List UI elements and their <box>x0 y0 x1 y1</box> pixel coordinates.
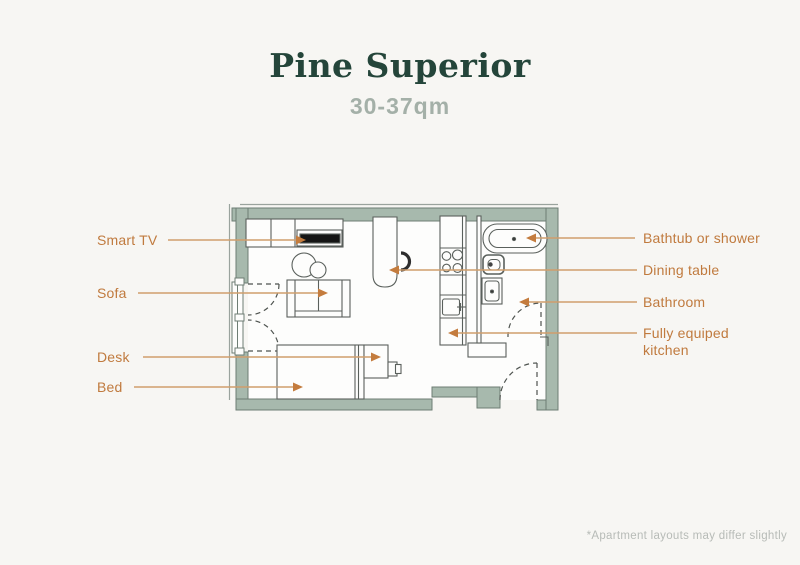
label-kitchen: Fully equiped kitchen <box>643 325 761 359</box>
floorplan-drawing <box>0 0 800 565</box>
wall-bottom-left <box>236 399 432 410</box>
wall-entry-jamb <box>477 387 500 408</box>
dining-table-symbol <box>373 217 397 287</box>
bathroom-wall <box>477 216 481 343</box>
smart-tv-symbol <box>297 230 342 246</box>
bed-symbol <box>277 345 364 399</box>
entry-counter-symbol <box>468 343 506 357</box>
label-smart-tv: Smart TV <box>97 232 157 249</box>
label-dining-table: Dining table <box>643 262 719 279</box>
label-bathtub: Bathtub or shower <box>643 230 760 247</box>
floorplan-page: Pine Superior 30-37qm <box>0 0 800 565</box>
label-bathroom: Bathroom <box>643 294 705 311</box>
label-desk: Desk <box>97 349 130 366</box>
label-bed: Bed <box>97 379 123 396</box>
label-sofa: Sofa <box>97 285 127 302</box>
sofa-symbol <box>287 280 350 317</box>
bathroom-sink-symbol <box>482 278 502 304</box>
disclaimer-note: *Apartment layouts may differ slightly <box>587 530 787 542</box>
kitchen-symbol <box>440 216 466 345</box>
balcony-window <box>232 278 244 355</box>
toilet-symbol <box>483 255 504 274</box>
wall-bottom-step <box>432 387 479 397</box>
